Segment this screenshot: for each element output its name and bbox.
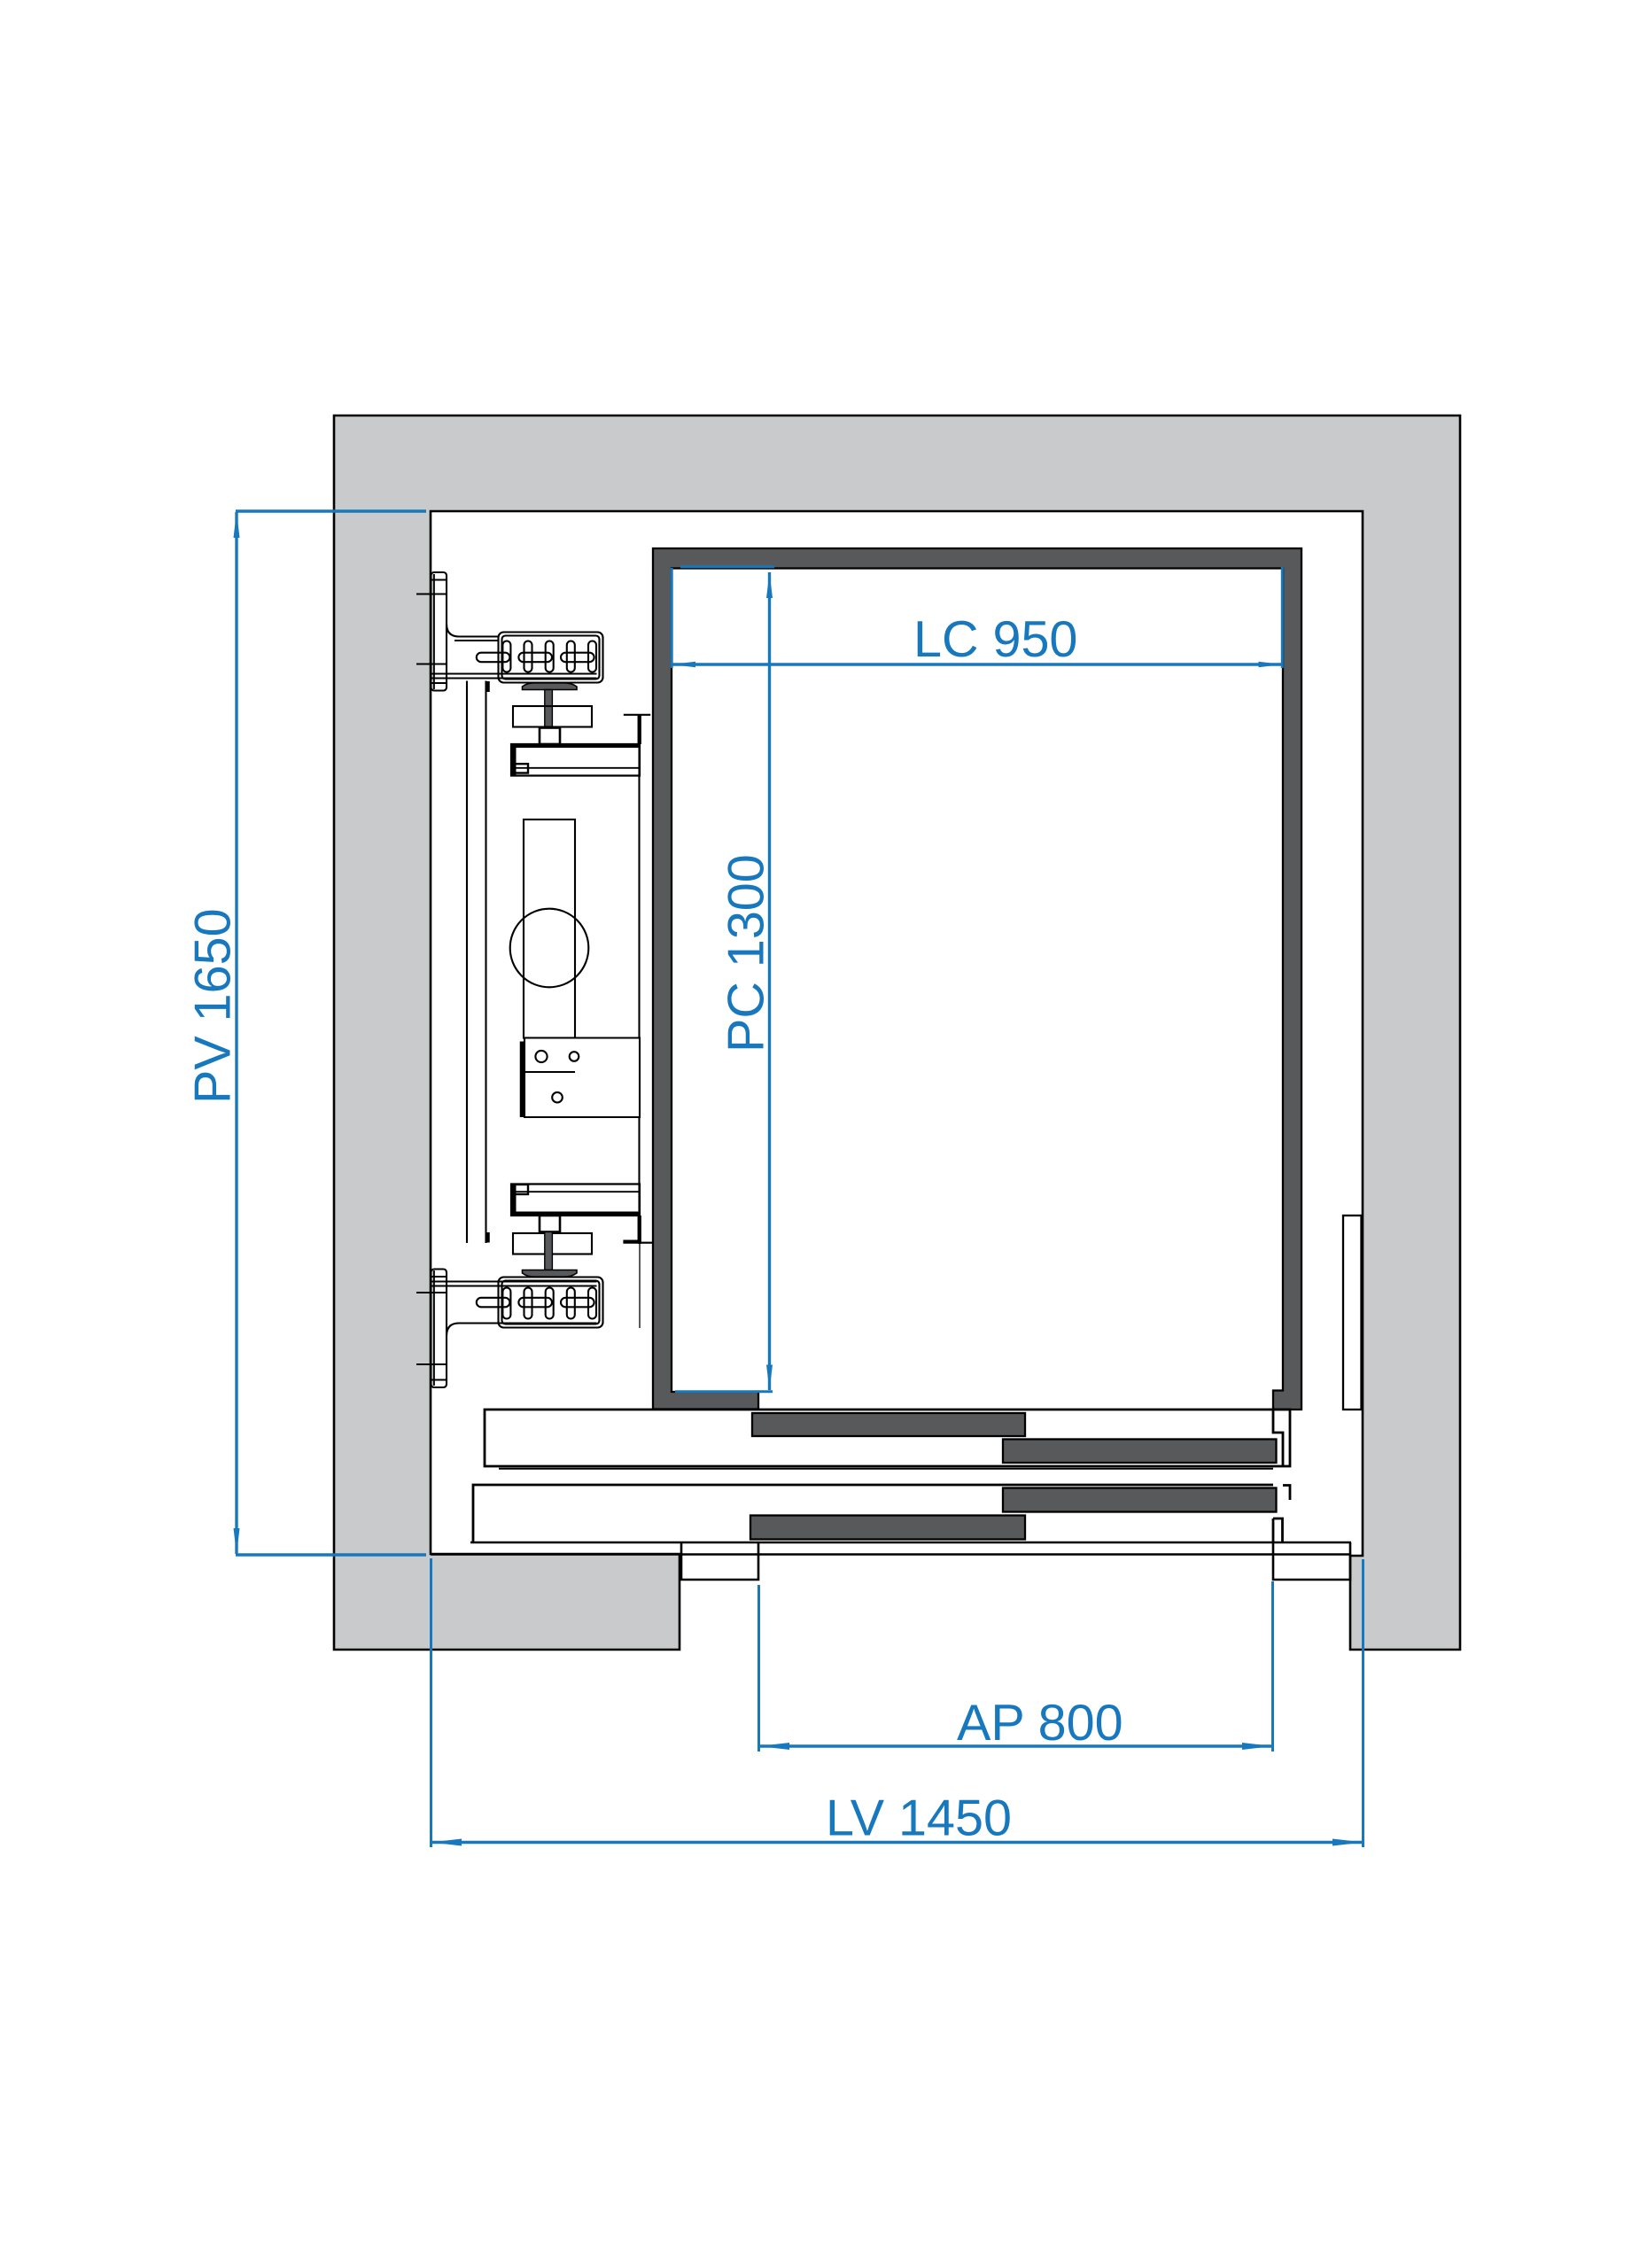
- svg-text:LV 1450: LV 1450: [826, 1790, 1012, 1847]
- svg-text:LC 950: LC 950: [913, 611, 1077, 668]
- svg-text:PC 1300: PC 1300: [719, 854, 775, 1052]
- svg-text:PV 1650: PV 1650: [185, 908, 242, 1104]
- svg-text:AP 800: AP 800: [957, 1695, 1123, 1751]
